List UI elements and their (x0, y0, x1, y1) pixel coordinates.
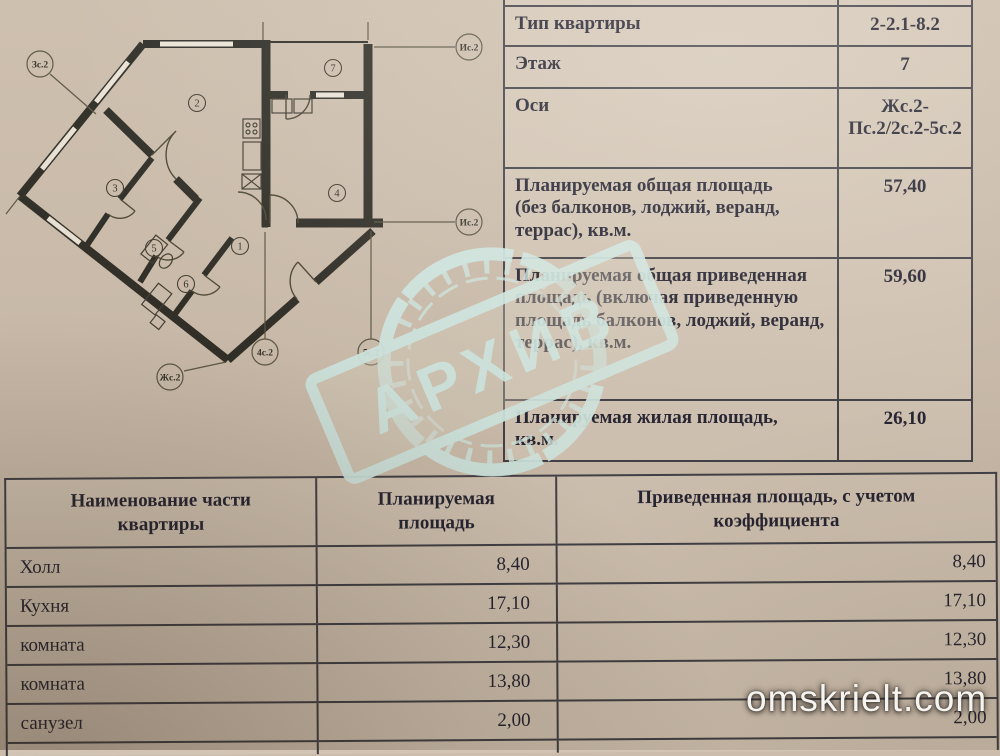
reduced-area: 12,30 (558, 621, 996, 661)
plan-walls (20, 40, 383, 360)
site-watermark: omskrielt.com (746, 678, 987, 720)
room-number-left-room: 3 (112, 184, 117, 195)
part-name: санузел (8, 703, 319, 742)
part-name: Кухня (7, 586, 318, 625)
room-number-bath-b: 6 (183, 280, 188, 291)
plan-windows (42, 44, 344, 243)
axis-label-right-bottom: Ис.2 (460, 219, 479, 229)
axis-label-right-top: Ис.2 (460, 44, 479, 54)
reduced-area: 8,40 (558, 543, 996, 583)
room-number-loggia: 7 (330, 64, 335, 75)
room-number-right-room: 4 (334, 189, 340, 200)
axis-label-bottom-center: 4с.2 (257, 349, 273, 359)
floor-plan-drawing: Зс.2 Ис.2 Ис.2 Жс.2 4с.2 5с.2 7 2 3 4 1 … (0, 0, 500, 470)
header-cell: Приведенная площадь, с учетом коэффициен… (557, 474, 995, 544)
table-row: Кухня 17,10 17,10 (7, 580, 996, 625)
axis-label-top-left: Зс.2 (32, 61, 49, 71)
table-row: Тип квартиры 2-2.1-8.2 (505, 5, 971, 45)
info-label: Планируемая жилая площадь, кв.м. (505, 401, 839, 460)
header-cell: Планируемая площадь (317, 477, 557, 545)
planned-area: 17,10 (318, 585, 558, 623)
info-value: 57,40 (839, 169, 971, 257)
table-row: комната 12,30 12,30 (7, 619, 996, 664)
table-row: Планируемая общая приведенная площадь (в… (505, 257, 971, 399)
table-row: Оси Жс.2-Пс.2/2с.2-5с.2 (505, 87, 971, 167)
info-label: Оси (505, 89, 839, 167)
table-row: Холл 8,40 8,40 (7, 541, 996, 586)
room-number-bath-a: 5 (151, 244, 156, 255)
room-number-main-room: 2 (194, 99, 199, 110)
planned-area: 12,30 (318, 624, 558, 662)
info-value: 26,10 (839, 401, 971, 460)
table-row: Планируемая общая площадь (без балконов,… (505, 167, 971, 257)
info-value: Жс.2-Пс.2/2с.2-5с.2 (839, 89, 971, 167)
table-row: Планируемая жилая площадь, кв.м. 26,10 (505, 399, 971, 460)
part-name: комната (7, 664, 318, 703)
photographed-document: { "stamp": { "text": "АРХИВ" }, "waterma… (0, 0, 1000, 750)
plan-axis-lines (6, 22, 455, 371)
planned-area: 2,00 (319, 702, 559, 740)
part-name: комната (7, 625, 318, 664)
part-name: Холл (7, 547, 318, 586)
info-value: 2-2.1-8.2 (839, 7, 971, 45)
planned-area: 13,80 (318, 663, 558, 701)
apartment-info-table: Тип квартиры 2-2.1-8.2 Этаж 7 Оси Жс.2-П… (503, 0, 973, 462)
table-row: Этаж 7 (505, 45, 971, 87)
room-number-hall: 1 (237, 242, 242, 253)
info-label: Этаж (505, 47, 839, 87)
reduced-area: 17,10 (558, 582, 996, 622)
planned-area: 8,40 (318, 546, 558, 584)
info-label: Планируемая общая приведенная площадь (в… (505, 259, 839, 399)
table-row (505, 0, 971, 5)
axis-label-bottom-right: 5с.2 (363, 349, 379, 359)
info-label: Планируемая общая площадь (без балконов,… (505, 169, 839, 257)
info-label: Тип квартиры (505, 7, 839, 45)
info-value: 7 (839, 47, 971, 87)
table-header-row: Наименование части квартиры Планируемая … (6, 474, 995, 547)
info-value: 59,60 (839, 259, 971, 399)
plan-room-circles (107, 60, 346, 293)
header-cell: Наименование части квартиры (6, 478, 317, 547)
axis-label-bottom-left: Жс.2 (160, 374, 181, 384)
